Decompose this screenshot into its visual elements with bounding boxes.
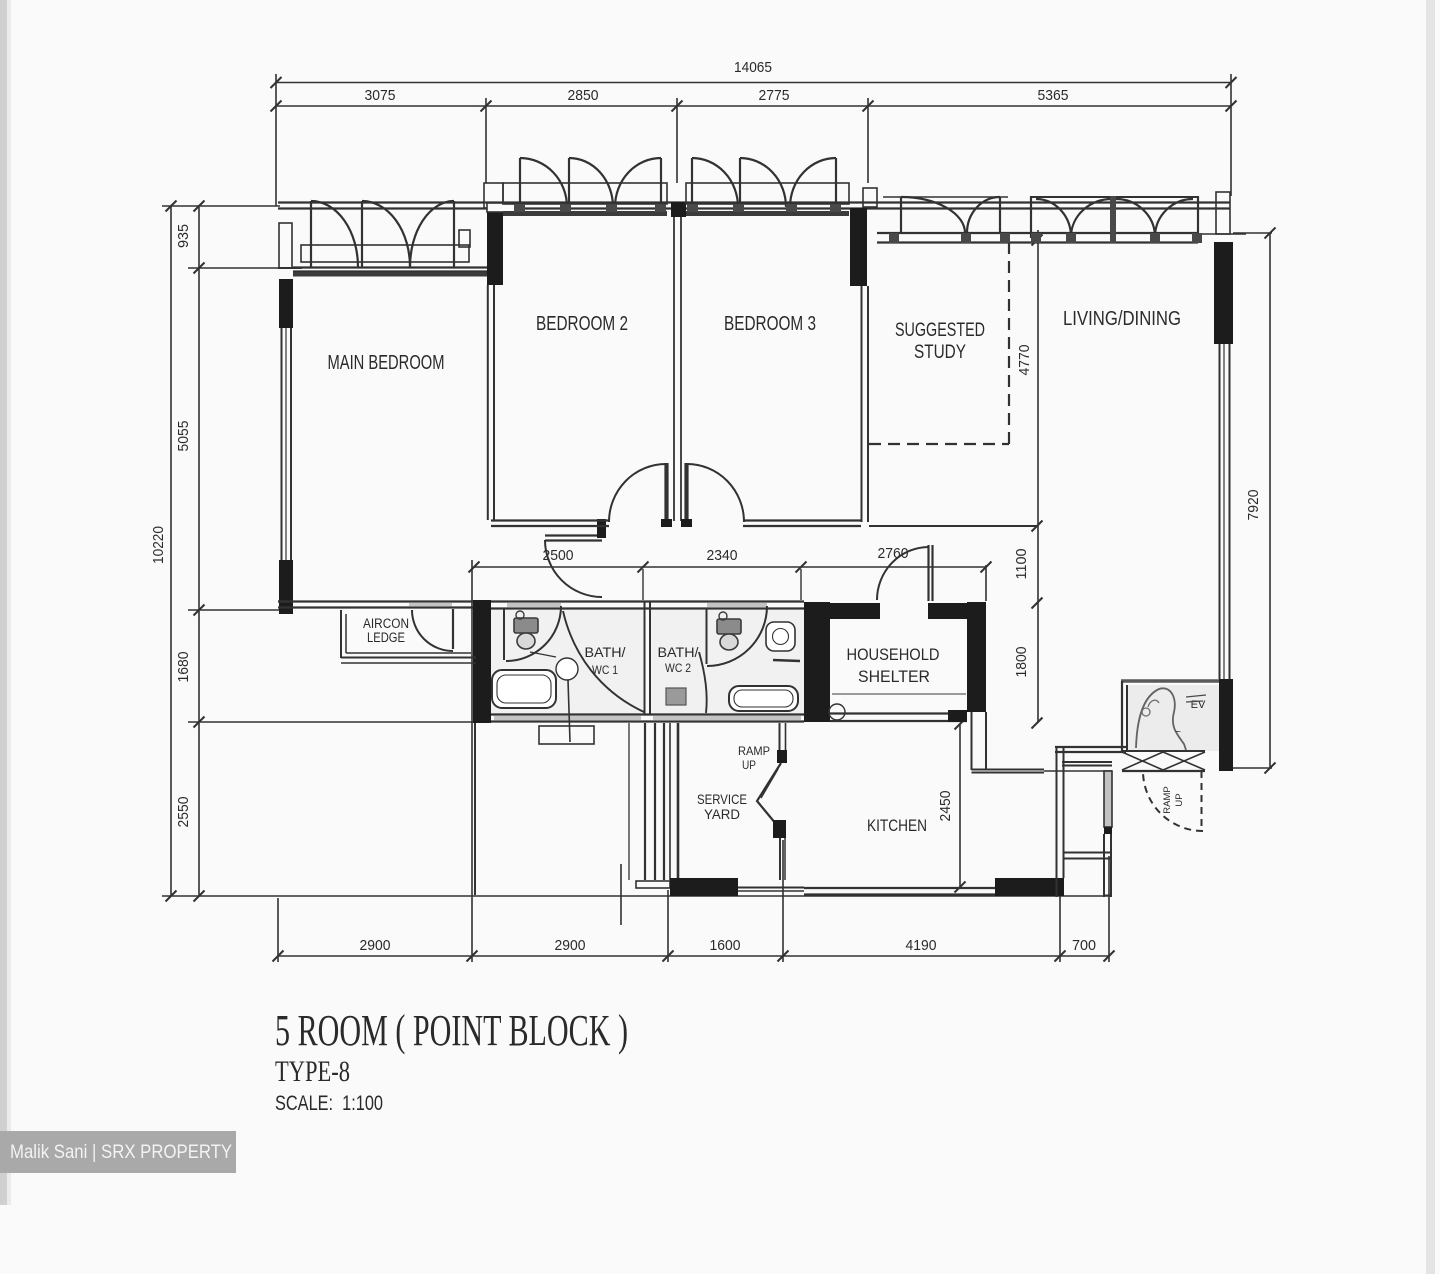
svg-text:KITCHEN: KITCHEN [867,816,927,835]
svg-text:UP: UP [1174,793,1185,806]
svg-text:RAMP: RAMP [738,744,770,758]
svg-text:SERVICE: SERVICE [697,791,747,807]
svg-text:1600: 1600 [710,937,741,954]
svg-text:SUGGESTED: SUGGESTED [895,320,985,341]
svg-text:RAMP: RAMP [1162,786,1173,813]
svg-text:SCALE: 1:100: SCALE: 1:100 [275,1092,383,1115]
svg-text:1100: 1100 [1013,549,1030,580]
svg-text:WC 2: WC 2 [665,661,691,675]
svg-text:5055: 5055 [175,421,192,452]
svg-text:2850: 2850 [568,87,599,104]
svg-text:BEDROOM 2: BEDROOM 2 [536,313,628,335]
svg-text:5 ROOM ( POINT BLOCK ): 5 ROOM ( POINT BLOCK ) [275,1006,628,1055]
svg-text:935: 935 [175,224,192,248]
svg-text:14065: 14065 [734,59,772,76]
svg-text:5365: 5365 [1038,87,1069,104]
svg-text:4770: 4770 [1016,345,1033,376]
svg-text:2340: 2340 [707,547,738,564]
svg-text:HOUSEHOLD: HOUSEHOLD [847,645,940,664]
svg-text:MAIN BEDROOM: MAIN BEDROOM [328,352,445,374]
svg-text:7920: 7920 [1245,490,1262,521]
svg-text:700: 700 [1072,937,1096,954]
svg-text:TYPE-8: TYPE-8 [275,1055,350,1088]
svg-text:~: ~ [1175,727,1181,738]
svg-text:3075: 3075 [365,87,396,104]
svg-text:1800: 1800 [1013,647,1030,678]
svg-text:1680: 1680 [175,652,192,683]
svg-text:WC 1: WC 1 [592,663,618,677]
svg-text:10220: 10220 [150,526,167,564]
svg-text:4190: 4190 [906,937,937,954]
svg-text:SHELTER: SHELTER [858,667,930,686]
svg-text:BATH/: BATH/ [658,644,699,660]
svg-text:2900: 2900 [555,937,586,954]
svg-text:YARD: YARD [704,806,740,822]
svg-text:UP: UP [742,758,756,772]
svg-text:LEDGE: LEDGE [367,630,405,645]
svg-text:2775: 2775 [759,87,790,104]
svg-text:STUDY: STUDY [914,342,966,363]
svg-text:BATH/: BATH/ [585,644,626,660]
svg-text:LIVING/DINING: LIVING/DINING [1063,308,1181,330]
svg-text:2550: 2550 [175,797,192,828]
svg-text:BEDROOM 3: BEDROOM 3 [724,313,816,335]
svg-text:2450: 2450 [937,791,954,822]
svg-text:2900: 2900 [360,937,391,954]
svg-text:AIRCON: AIRCON [363,616,409,631]
